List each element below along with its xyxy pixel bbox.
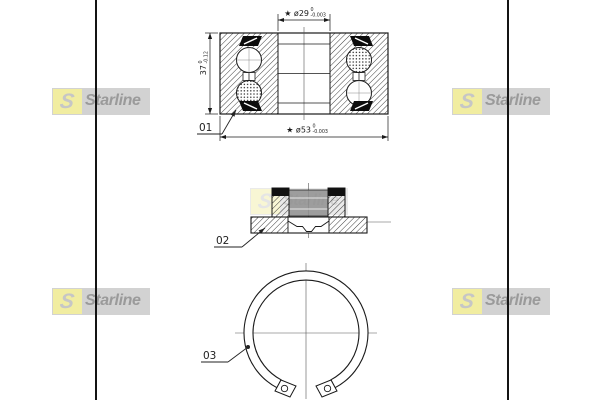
- bearing-cage-left: [243, 73, 255, 81]
- starline-logo-text: Starline: [85, 292, 141, 310]
- snap-ring-drawing-03: [235, 263, 377, 399]
- outer-diameter-tolerance-lower: -0.003: [313, 129, 328, 135]
- width-tolerance-upper: 0: [198, 60, 204, 63]
- width-tolerance-lower: -0.12: [204, 51, 210, 63]
- dimension-width: 37 0 -0.12: [198, 33, 218, 114]
- starline-logo-text: Starline: [85, 92, 141, 110]
- bore-tolerance-lower: -0.003: [311, 13, 326, 19]
- table-border-line-left: [95, 0, 97, 400]
- starline-logo-mark: S: [453, 89, 482, 114]
- part-number-02: 02: [216, 235, 229, 247]
- flange-bore: [289, 190, 328, 216]
- bearing-cage-right: [353, 73, 365, 81]
- starline-logo-bottom-right: S Starline: [452, 288, 550, 315]
- callout-03: 03: [201, 345, 250, 362]
- bore-tolerance-upper: 0: [311, 7, 314, 13]
- outer-diameter-tolerance-upper: 0: [313, 124, 316, 130]
- wheel-bearing-kit-drawing: S Starline: [0, 0, 600, 400]
- starline-logo-mark: S: [53, 89, 82, 114]
- width-dimension-value: 37: [199, 65, 208, 75]
- starline-logo-text: Starline: [485, 92, 541, 110]
- bearing-ball-top-left: [237, 48, 262, 73]
- technical-drawings: ★ ø29 0 -0.003 ★ ø53 0 -0.003 37 0 -0: [0, 0, 600, 400]
- part-number-01: 01: [199, 122, 212, 134]
- starline-logo-bottom-left: S Starline: [52, 288, 150, 315]
- bearing-ball-top-right: [347, 48, 372, 73]
- bore-dimension-value: ★ ø29: [284, 9, 309, 18]
- part-number-03: 03: [203, 350, 216, 362]
- starline-logo-mark: S: [53, 289, 82, 314]
- starline-logo-mark: S: [453, 289, 482, 314]
- bearing-drawing-01: [220, 27, 388, 120]
- starline-logo-text: Starline: [485, 292, 541, 310]
- starline-logo-top-right: S Starline: [452, 88, 550, 115]
- outer-diameter-value: ★ ø53: [286, 126, 311, 135]
- starline-logo-top-left: S Starline: [52, 88, 150, 115]
- table-border-line-right: [507, 0, 509, 400]
- hub-flange-drawing-02: [251, 183, 391, 238]
